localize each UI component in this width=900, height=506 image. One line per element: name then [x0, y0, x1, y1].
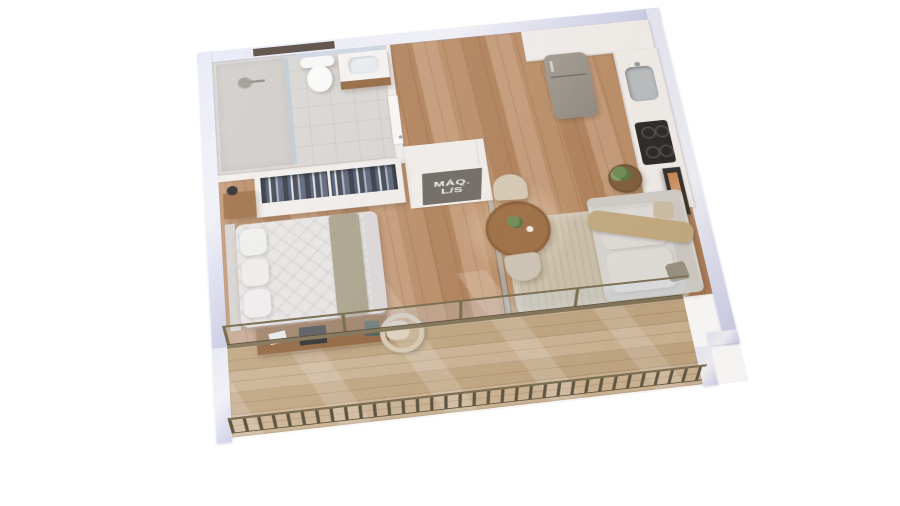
- floorplan-3d: MÁQ. L/S: [192, 5, 756, 467]
- vanity-basin: [348, 55, 380, 75]
- burner: [658, 144, 675, 158]
- washer-dryer-label-plate: MÁQ. L/S: [418, 165, 486, 208]
- label-line2: L/S: [441, 186, 463, 196]
- shower-floor: [216, 58, 294, 172]
- sofa-pillow: [653, 201, 674, 219]
- balcony-parapet-left: [212, 347, 232, 443]
- render-canvas: MÁQ. L/S: [0, 0, 900, 506]
